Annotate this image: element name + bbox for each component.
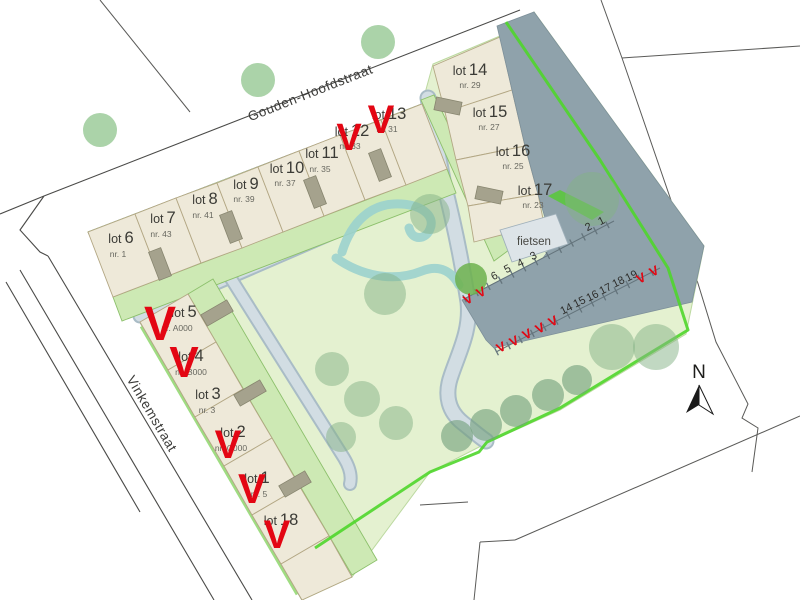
lot-11-number: nr. 35 (309, 164, 331, 174)
lot-3-number: nr. 3 (199, 405, 216, 415)
north-arrow: N (686, 362, 713, 414)
lot-11-label: lot11 (305, 144, 338, 162)
sold-mark-lot-12: V (336, 117, 362, 159)
sold-mark-lot-2: V (215, 423, 242, 467)
tree-icon (241, 63, 275, 97)
tree-icon (532, 379, 564, 411)
site-plan-canvas: Gouden-Hoofdstraat Vinkemstraat (0, 0, 800, 600)
tree-icon (562, 365, 592, 395)
lot-14-label: lot14 (453, 61, 488, 79)
lot-16-label: lot16 (496, 142, 531, 160)
lot-15-number: nr. 27 (478, 122, 500, 132)
lot-17-label: lot17 (518, 181, 553, 199)
sold-mark-lot-18: V (264, 513, 291, 557)
tree-icon (565, 172, 619, 226)
tree-icon (500, 395, 532, 427)
lot-9-number: nr. 39 (233, 194, 255, 204)
tree-icon (589, 324, 635, 370)
lot-6-number: nr. 1 (110, 249, 127, 259)
north-arrow-light-half (699, 385, 713, 414)
lot-15-label: lot15 (473, 103, 508, 121)
tree-icon (470, 409, 502, 441)
sold-mark-lot-1: V (238, 465, 266, 512)
tree-icon (410, 194, 450, 234)
sold-mark-lot-4: V (169, 338, 199, 387)
tree-icon (633, 324, 679, 370)
tree-icon (315, 352, 349, 386)
tree-icon (326, 422, 356, 452)
tree-icon (364, 273, 406, 315)
lot-10-number: nr. 37 (274, 178, 296, 188)
lot-17-number: nr. 23 (522, 200, 544, 210)
tree-icon (344, 381, 380, 417)
lot-6-label: lot6 (108, 229, 133, 247)
tree-icon (379, 406, 413, 440)
lot-7-number: nr. 43 (150, 229, 172, 239)
lot-16-number: nr. 25 (502, 161, 524, 171)
site-plan-map: Gouden-Hoofdstraat Vinkemstraat (0, 0, 800, 600)
north-arrow-dark-half (686, 385, 699, 413)
lot-8-number: nr. 41 (192, 210, 214, 220)
tree-icon (361, 25, 395, 59)
lot-14-number: nr. 29 (459, 80, 481, 90)
tree-icon (441, 420, 473, 452)
sold-mark-lot-13: V (368, 98, 395, 142)
bike-shed-label: fietsen (517, 236, 551, 248)
north-label: N (692, 362, 706, 383)
lot-9-label: lot9 (233, 175, 258, 193)
lot-8-label: lot8 (192, 190, 217, 208)
tree-icon (83, 113, 117, 147)
lot-7-label: lot7 (150, 209, 175, 227)
lot-10-label: lot10 (270, 159, 305, 177)
lot-3-label: lot3 (195, 385, 220, 403)
